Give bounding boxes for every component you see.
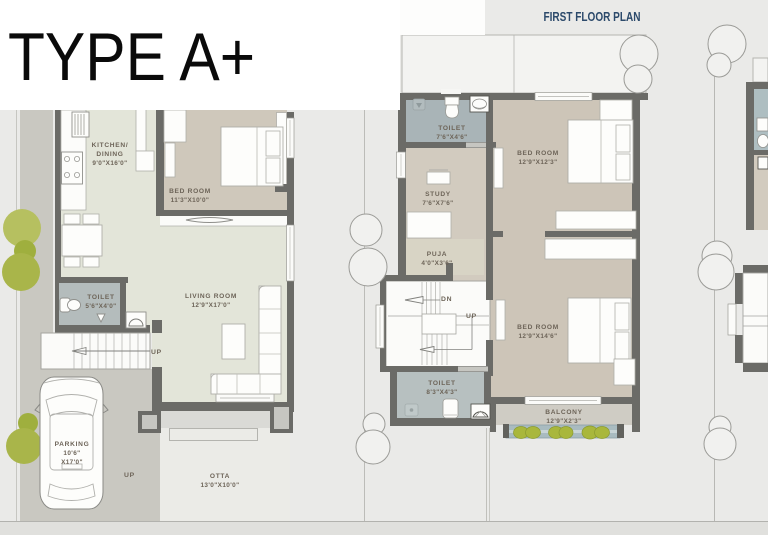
svg-text:5'6"X4'0": 5'6"X4'0": [85, 303, 116, 310]
svg-text:8'3"X4'3": 8'3"X4'3": [426, 389, 457, 396]
svg-text:BED ROOM: BED ROOM: [169, 188, 211, 195]
svg-text:UP: UP: [151, 349, 162, 356]
svg-text:TOILET: TOILET: [438, 125, 466, 132]
svg-text:7'6"X7'6": 7'6"X7'6": [422, 200, 453, 207]
svg-text:UP: UP: [124, 472, 135, 479]
svg-text:13'0"X10'0": 13'0"X10'0": [200, 482, 239, 489]
svg-text:BED ROOM: BED ROOM: [517, 150, 559, 157]
svg-text:12'9"X2'3": 12'9"X2'3": [546, 418, 581, 425]
svg-text:11'3"X10'0": 11'3"X10'0": [171, 197, 210, 204]
svg-text:PUJA: PUJA: [427, 251, 447, 258]
svg-text:DINING: DINING: [96, 151, 123, 158]
svg-text:12'9"X17'0": 12'9"X17'0": [191, 302, 230, 309]
svg-text:LIVING ROOM: LIVING ROOM: [185, 293, 237, 300]
svg-text:X17'0": X17'0": [61, 459, 83, 466]
svg-text:FIRST FLOOR PLAN: FIRST FLOOR PLAN: [544, 10, 641, 24]
svg-text:7'6"X4'6": 7'6"X4'6": [436, 134, 467, 141]
svg-text:KITCHEN/: KITCHEN/: [92, 142, 129, 149]
svg-text:TYPE A+: TYPE A+: [8, 19, 255, 95]
svg-text:10'6": 10'6": [63, 450, 80, 457]
svg-text:9'0"X16'0": 9'0"X16'0": [92, 160, 127, 167]
svg-text:12'9"X14'6": 12'9"X14'6": [518, 333, 557, 340]
svg-text:UP: UP: [466, 313, 477, 320]
svg-text:OTTA: OTTA: [210, 473, 230, 480]
svg-text:PARKING: PARKING: [55, 441, 90, 448]
svg-text:BALCONY: BALCONY: [545, 409, 583, 416]
svg-text:STUDY: STUDY: [425, 191, 451, 198]
svg-text:BED ROOM: BED ROOM: [517, 324, 559, 331]
svg-text:12'9"X12'3": 12'9"X12'3": [518, 159, 557, 166]
svg-text:TOILET: TOILET: [428, 380, 456, 387]
svg-text:4'0"X3'6": 4'0"X3'6": [421, 260, 452, 267]
svg-text:DN: DN: [441, 296, 452, 303]
svg-text:TOILET: TOILET: [87, 294, 115, 301]
